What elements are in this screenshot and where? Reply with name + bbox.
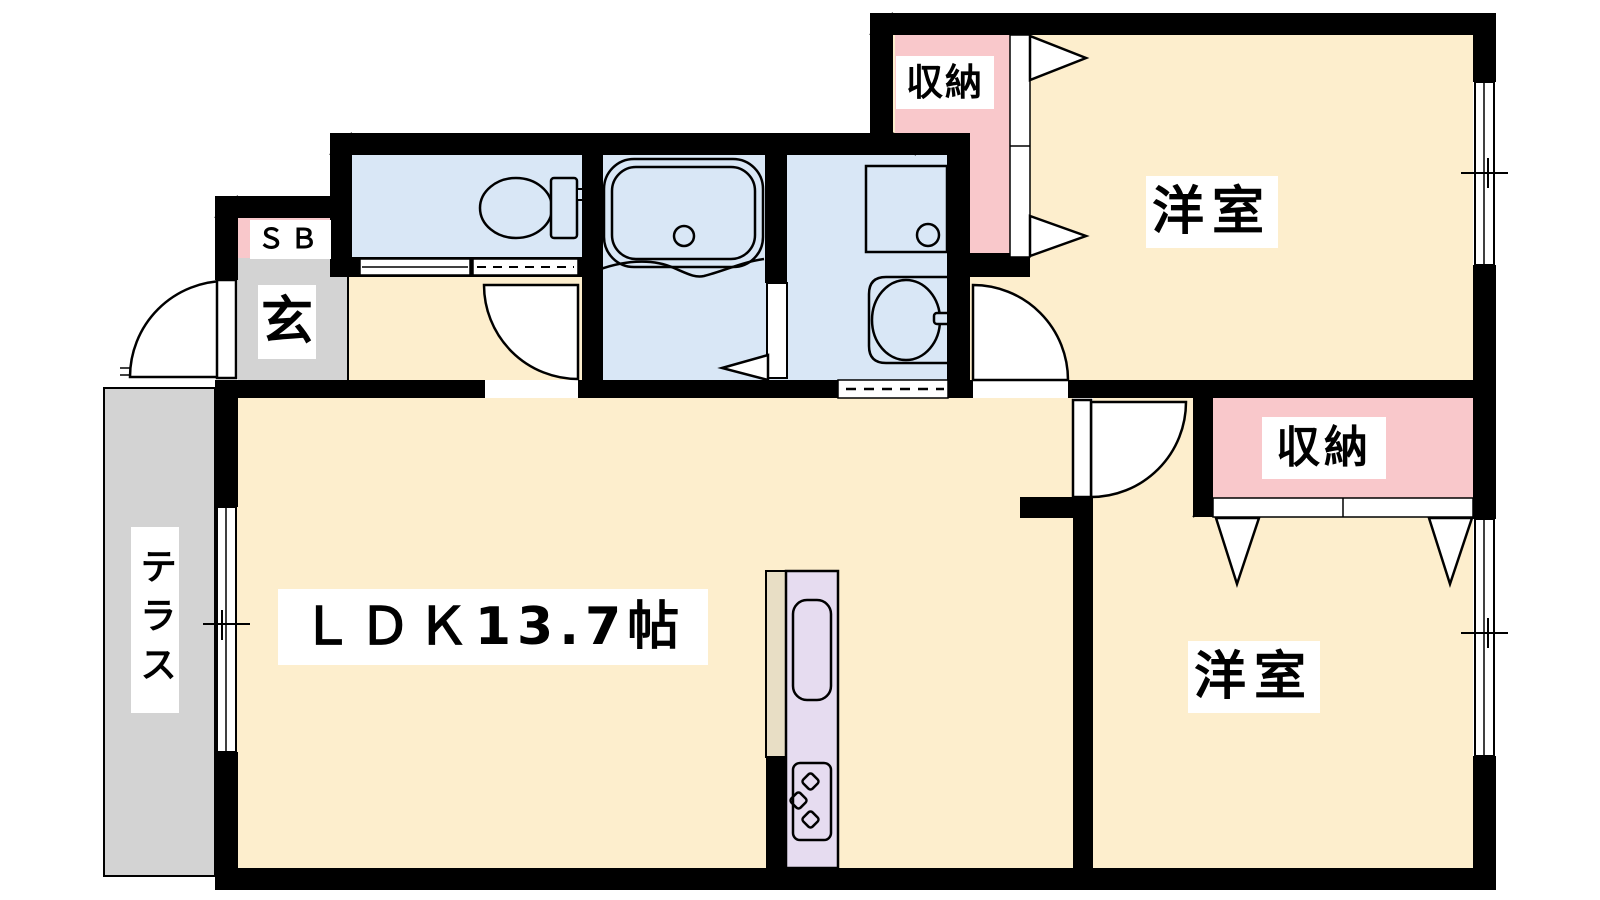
- washroom-sliding-door: [838, 380, 948, 398]
- bedroom-top-label: 洋室: [1146, 176, 1278, 248]
- toilet-door: [360, 259, 578, 275]
- entrance-door: [120, 280, 236, 378]
- counter-side-panel: [766, 571, 786, 757]
- kitchen-wall-stub: [766, 757, 786, 868]
- kitchen-counter: [766, 571, 838, 868]
- ldk-label: ＬＤＫ13.7帖: [278, 589, 708, 665]
- closet-bottom-label: 収納: [1262, 417, 1386, 479]
- closet-top-label: 収納: [896, 56, 994, 109]
- washroom-floor: [787, 155, 948, 380]
- entrance-label: 玄: [258, 285, 316, 359]
- bedroom-bottom-label: 洋室: [1188, 641, 1320, 713]
- shoe-box-label: ＳＢ: [250, 220, 331, 259]
- toilet-icon: [480, 178, 588, 238]
- floor-plan: 収納 洋室 ＳＢ 玄 テラス ＬＤＫ13.7帖 収納 洋室: [0, 0, 1600, 900]
- terrace-label: テラス: [131, 527, 179, 713]
